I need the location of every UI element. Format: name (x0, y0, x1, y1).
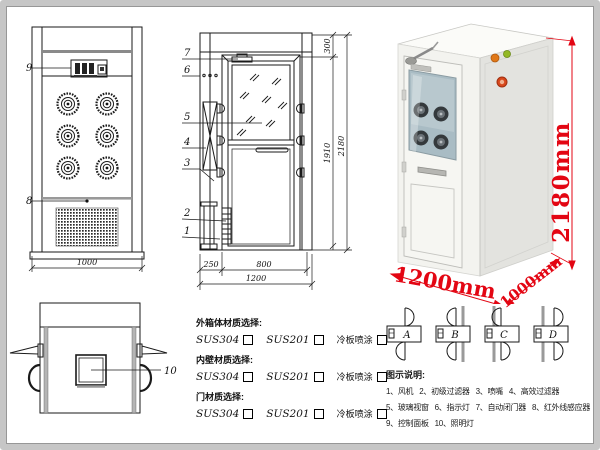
outer-body-material-title: 外箱体材质选择: (196, 316, 384, 329)
legend-row-3: 9、控制面板 10、照明灯 (386, 418, 594, 429)
control-panel (71, 60, 107, 77)
door-swing-options: A B C (383, 304, 574, 364)
hinge (402, 227, 406, 237)
material-option-label: SUS201 (266, 334, 309, 346)
door-window (409, 70, 456, 160)
dim-total-width: 1200 (246, 274, 266, 283)
door-config-d: D (530, 304, 574, 364)
front-view-drawing: 9 8 1000 (25, 20, 155, 280)
legend-item: 5、玻璃视窗 (386, 402, 429, 413)
ceiling-light (76, 355, 106, 387)
hinge (402, 162, 406, 172)
glass-window (232, 65, 290, 140)
legend-item: 1、风机 (386, 386, 413, 397)
air-shower-spec-sheet: 9 8 1000 (0, 0, 600, 450)
legend-item: 2、初级过滤器 (419, 386, 469, 397)
legend-item: 3、喷嘴 (476, 386, 503, 397)
material-option-label: 冷板喷涂 (337, 370, 373, 383)
door-config-letter: B (450, 330, 458, 341)
inner-wall-material-options: SUS304 SUS201 冷板喷涂 (196, 370, 384, 383)
legend-row-1: 1、风机 2、初级过滤器 3、喷嘴 4、高效过滤器 (386, 386, 594, 397)
air-shower-cabinet-render (383, 12, 590, 304)
material-selection: 外箱体材质选择: SUS304 SUS201 冷板喷涂 内壁材质选择: SUS3… (196, 316, 384, 427)
air-return-grille (56, 208, 118, 246)
checkbox-sus201[interactable] (314, 409, 324, 419)
hinge (402, 90, 406, 100)
dim-door-height: 1910 (323, 143, 332, 163)
inner-wall-material-title: 内壁材质选择: (196, 353, 384, 366)
legend: 图示说明: 1、风机 2、初级过滤器 3、喷嘴 4、高效过滤器 5、玻璃视窗 6… (386, 368, 594, 434)
left-handle (29, 365, 40, 391)
emergency-button-center (500, 80, 504, 84)
section-label-6: 6 (184, 65, 191, 76)
material-option-label: SUS304 (196, 371, 239, 383)
door-config-b: B (432, 304, 476, 364)
legend-item: 6、指示灯 (435, 402, 470, 413)
legend-title: 图示说明: (386, 368, 594, 381)
orange-indicator-light (491, 54, 499, 62)
front-view-label-9: 9 (26, 63, 33, 74)
legend-item: 8、红外线感应器 (532, 402, 590, 413)
door-config-letter: C (500, 330, 508, 341)
section-view-drawing: 7 6 5 4 3 2 1 300 1910 2180 250 800 1200 (180, 18, 380, 308)
checkbox-sus304[interactable] (243, 409, 253, 419)
legend-row-2: 5、玻璃视窗 6、指示灯 7、自动闭门器 8、红外线感应器 (386, 402, 594, 413)
material-option-label: 冷板喷涂 (337, 407, 373, 420)
legend-item: 4、高效过滤器 (509, 386, 559, 397)
door-config-a: A (383, 304, 427, 364)
legend-item: 7、自动闭门器 (476, 402, 526, 413)
front-width-value: 1000 (77, 258, 97, 267)
width-dimensions (197, 252, 315, 290)
door-material-options: SUS304 SUS201 冷板喷涂 (196, 407, 384, 420)
section-label-2: 2 (183, 208, 190, 219)
dim-top-plenum: 300 (323, 38, 332, 53)
right-handle (140, 365, 151, 391)
door-config-letter: D (548, 330, 557, 341)
section-label-4: 4 (183, 137, 190, 148)
legend-item: 10、照明灯 (435, 418, 474, 429)
material-option-label: SUS201 (266, 408, 309, 420)
door-section (222, 55, 300, 250)
checkbox-sus201[interactable] (314, 372, 324, 382)
material-option-label: SUS304 (196, 334, 239, 346)
door-handle (256, 148, 288, 152)
checkbox-sus304[interactable] (243, 335, 253, 345)
left-wall-nozzles (217, 104, 225, 177)
legend-item: 9、控制面板 (386, 418, 429, 429)
cabinet-side-face (480, 38, 553, 276)
dim-door-width: 800 (256, 260, 271, 269)
section-label-5: 5 (184, 112, 190, 123)
green-indicator-light (504, 51, 511, 58)
door-material-title: 门材质选择: (196, 390, 384, 403)
dim-total-height: 2180 (337, 136, 346, 157)
section-label-7: 7 (184, 48, 191, 59)
door-config-c: C (481, 304, 525, 364)
checkbox-sus304[interactable] (243, 372, 253, 382)
nozzle-grid (58, 94, 118, 179)
section-label-1: 1 (184, 226, 190, 237)
dim-left-offset: 250 (202, 260, 218, 269)
outer-body-material-options: SUS304 SUS201 冷板喷涂 (196, 333, 384, 346)
top-view-label-10: 10 (164, 366, 177, 377)
checkbox-sus201[interactable] (314, 335, 324, 345)
material-option-label: SUS201 (266, 371, 309, 383)
blower-duct (201, 202, 231, 249)
material-option-label: 冷板喷涂 (337, 333, 373, 346)
top-view-drawing: 10 (8, 295, 198, 430)
front-view-label-8: 8 (26, 196, 32, 207)
door-config-letter: A (402, 330, 410, 341)
material-option-label: SUS304 (196, 408, 239, 420)
product-photo: 2180mm 1200mm 1000mm (383, 12, 590, 304)
section-label-3: 3 (184, 158, 190, 169)
